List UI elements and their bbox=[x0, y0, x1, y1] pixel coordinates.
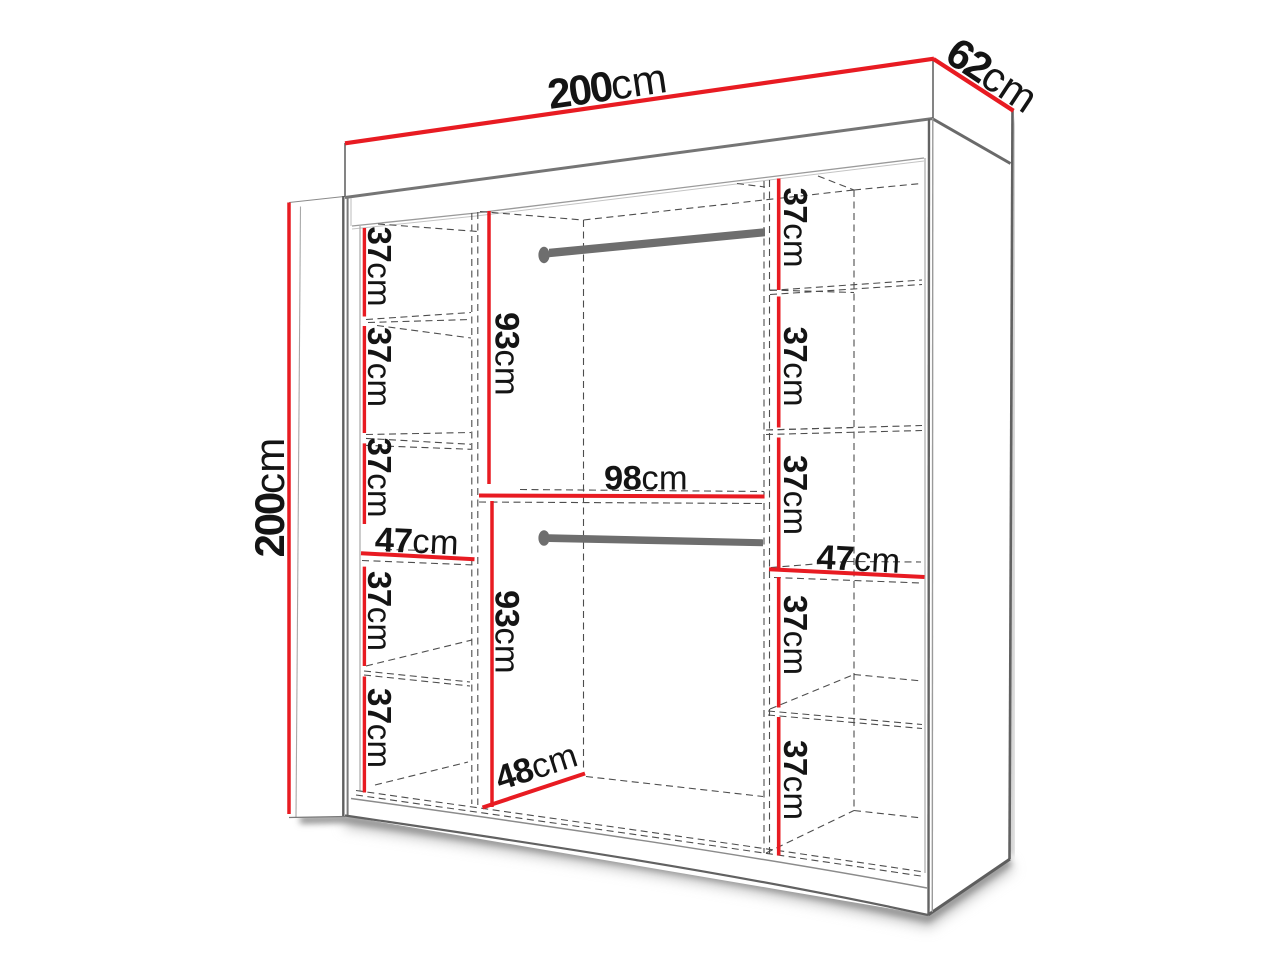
svg-text:37cm: 37cm bbox=[361, 688, 398, 768]
svg-text:98cm: 98cm bbox=[604, 460, 688, 498]
svg-text:47cm: 47cm bbox=[374, 521, 460, 563]
svg-text:200cm: 200cm bbox=[246, 437, 293, 557]
svg-text:47cm: 47cm bbox=[816, 539, 902, 581]
svg-text:37cm: 37cm bbox=[777, 455, 814, 535]
svg-text:37cm: 37cm bbox=[777, 188, 814, 268]
svg-text:37cm: 37cm bbox=[361, 571, 398, 651]
svg-text:37cm: 37cm bbox=[777, 327, 814, 407]
svg-text:93cm: 93cm bbox=[488, 590, 526, 674]
svg-text:37cm: 37cm bbox=[777, 595, 814, 675]
svg-text:37cm: 37cm bbox=[361, 438, 398, 518]
svg-text:37cm: 37cm bbox=[361, 327, 398, 407]
svg-text:93cm: 93cm bbox=[488, 312, 526, 396]
svg-text:37cm: 37cm bbox=[777, 740, 814, 820]
svg-text:37cm: 37cm bbox=[361, 227, 398, 307]
